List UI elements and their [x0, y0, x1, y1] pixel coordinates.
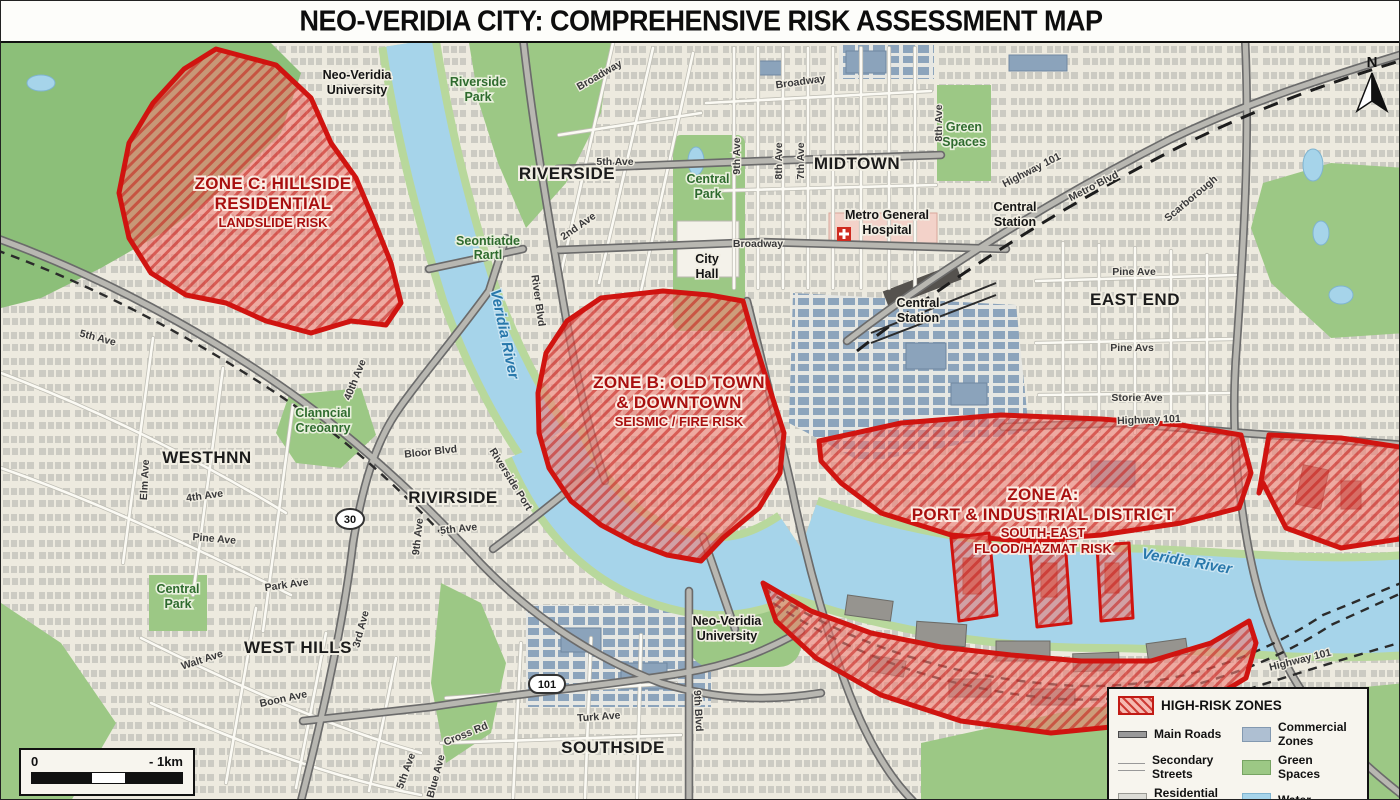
legend-item-main-roads: Main Roads	[1118, 720, 1234, 748]
district-west-hills: WEST HILLS	[244, 638, 352, 657]
svg-text:Central: Central	[896, 296, 939, 310]
svg-text:101: 101	[538, 679, 556, 691]
district-east-end: EAST END	[1090, 290, 1180, 309]
svg-text:Spaces: Spaces	[942, 135, 986, 149]
legend-item-high-risk-zones: HIGH-RISK ZONES	[1118, 696, 1358, 715]
svg-text:Station: Station	[897, 311, 939, 325]
svg-text:University: University	[697, 629, 757, 643]
svg-text:FLOOD/HAZMAT RISK: FLOOD/HAZMAT RISK	[974, 541, 1112, 556]
svg-text:Broadway: Broadway	[733, 238, 783, 250]
svg-text:Riverside: Riverside	[450, 75, 506, 89]
svg-text:9th Blvd: 9th Blvd	[691, 690, 705, 732]
title-bar: NEO-VERIDIA CITY: COMPREHENSIVE RISK ASS…	[1, 1, 1400, 41]
legend: HIGH-RISK ZONES Main Roads Commercial Zo…	[1107, 687, 1369, 800]
svg-text:LANDSLIDE RISK: LANDSLIDE RISK	[218, 215, 328, 230]
main-roads-swatch	[1118, 731, 1147, 738]
svg-text:Neo-Veridia: Neo-Veridia	[323, 68, 393, 82]
water-swatch	[1242, 793, 1271, 800]
svg-text:University: University	[327, 83, 387, 97]
svg-text:Hospital: Hospital	[862, 223, 911, 237]
svg-text:N: N	[1367, 54, 1378, 71]
scale-end: - 1km	[149, 754, 183, 769]
district-rivirside: RIVIRSIDE	[408, 488, 498, 507]
scale-bar: 0 - 1km	[19, 748, 195, 796]
svg-text:Highway 101: Highway 101	[1117, 413, 1181, 427]
district-midtown: MIDTOWN	[814, 154, 900, 173]
svg-text:Pine Ave: Pine Ave	[1112, 266, 1156, 278]
svg-text:Storie Ave: Storie Ave	[1111, 392, 1162, 404]
high-risk-swatch	[1118, 696, 1154, 715]
svg-text:7th Ave: 7th Ave	[795, 142, 807, 179]
risk-assessment-map: NEO-VERIDIA CITY: COMPREHENSIVE RISK ASS…	[0, 0, 1400, 800]
svg-text:30: 30	[344, 514, 356, 526]
svg-text:Clanncial: Clanncial	[295, 406, 351, 420]
svg-text:Central: Central	[686, 172, 729, 186]
svg-text:SOUTH-EAST: SOUTH-EAST	[1001, 525, 1086, 540]
svg-text:Pine Avs: Pine Avs	[1110, 342, 1154, 354]
zone-a-label: ZONE A:	[1007, 485, 1078, 504]
route-shield-30: 30	[336, 509, 364, 529]
map-title: NEO-VERIDIA CITY: COMPREHENSIVE RISK ASS…	[299, 5, 1102, 38]
svg-text:8th Ave: 8th Ave	[773, 142, 785, 179]
svg-text:9th Ave: 9th Ave	[731, 137, 743, 174]
legend-item-residential-areas: Residential Areas	[1118, 786, 1234, 800]
svg-text:Park: Park	[464, 90, 491, 104]
commercial-zones-2-swatch	[1242, 727, 1271, 742]
svg-text:PORT & INDUSTRIAL DISTRICT: PORT & INDUSTRIAL DISTRICT	[912, 505, 1175, 524]
map-canvas: 30 101 RIVERSIDE MIDTOWN EAST END WESTHN…	[1, 41, 1400, 800]
district-southside: SOUTHSIDE	[561, 738, 665, 757]
scale-bar-graphic	[31, 772, 183, 784]
svg-text:Park: Park	[164, 597, 191, 611]
legend-item-secondary-streets: Secondary Streets	[1118, 753, 1234, 781]
route-shield-101: 101	[529, 675, 565, 693]
svg-text:Station: Station	[994, 215, 1036, 229]
district-westhnn: WESTHNN	[162, 448, 251, 467]
green-spaces-swatch	[1242, 760, 1271, 775]
svg-text:8th Ave: 8th Ave	[933, 104, 945, 141]
svg-text:Central: Central	[993, 200, 1036, 214]
svg-text:Central: Central	[156, 582, 199, 596]
secondary-streets-swatch	[1118, 763, 1145, 771]
svg-text:Seontiatde: Seontiatde	[456, 234, 520, 248]
svg-text:City: City	[695, 252, 719, 266]
zone-b-label: ZONE B: OLD TOWN	[593, 373, 765, 392]
svg-text:SEISMIC / FIRE RISK: SEISMIC / FIRE RISK	[615, 414, 744, 429]
legend-item-green-spaces: Green Spaces	[1242, 753, 1358, 781]
svg-text:RESIDENTIAL: RESIDENTIAL	[215, 194, 332, 213]
residential-areas-swatch	[1118, 793, 1147, 800]
svg-text:Neo-Veridia: Neo-Veridia	[693, 614, 763, 628]
legend-item-commercial-zones-2: Commercial Zones	[1242, 720, 1358, 748]
svg-text:Creoanry: Creoanry	[296, 421, 351, 435]
svg-text:& DOWNTOWN: & DOWNTOWN	[616, 393, 741, 412]
svg-text:Elm Ave: Elm Ave	[138, 459, 152, 500]
svg-text:Park: Park	[694, 187, 721, 201]
svg-text:Green: Green	[946, 120, 982, 134]
zone-c-label: ZONE C: HILLSIDE	[195, 174, 352, 193]
svg-text:Hall: Hall	[696, 267, 719, 281]
scale-start: 0	[31, 754, 38, 769]
svg-text:Metro General: Metro General	[845, 208, 929, 222]
legend-item-water: Water	[1242, 786, 1358, 800]
hospital-cross-icon	[837, 227, 851, 241]
svg-text:Rartl: Rartl	[474, 248, 502, 262]
svg-text:5th Ave: 5th Ave	[596, 156, 633, 168]
